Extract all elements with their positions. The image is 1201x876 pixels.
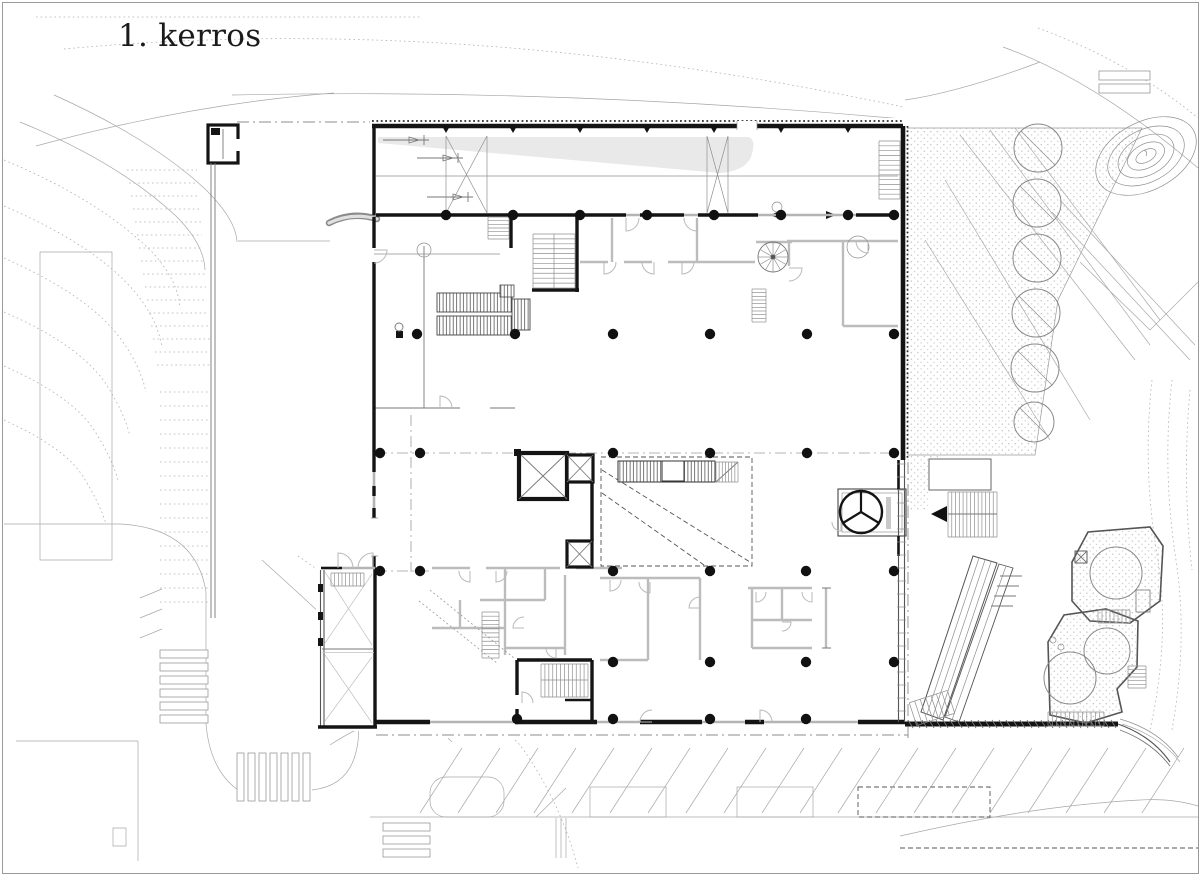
column-dot [510, 329, 520, 339]
column-dot [508, 210, 518, 220]
revolving-door-entrance [838, 489, 906, 536]
column-dot [705, 657, 715, 667]
column-dot [375, 448, 385, 458]
column-dot [512, 714, 522, 724]
column-dot [801, 566, 811, 576]
column-dot [608, 657, 618, 667]
west-retaining-wall [211, 163, 215, 618]
column-dot [705, 714, 715, 724]
site-plan-drawing [0, 0, 1201, 876]
spiral-staircase-icon [758, 242, 788, 272]
column-dot [441, 210, 451, 220]
column-dot [608, 566, 618, 576]
column-dot [608, 329, 618, 339]
planter-upper [1072, 527, 1163, 623]
column-dot [889, 657, 899, 667]
site-stair-kiosk [208, 125, 240, 163]
building-footprint-mask [205, 118, 1003, 738]
column-dot [705, 329, 715, 339]
column-dot [608, 714, 618, 724]
column-dot [642, 210, 652, 220]
column-dot [415, 566, 425, 576]
planter-lower [1044, 609, 1138, 723]
entrance-canopy [329, 216, 377, 223]
column-dot [801, 657, 811, 667]
column-dot [889, 210, 899, 220]
column-dot [575, 210, 585, 220]
column-dot [802, 448, 812, 458]
column-dot [889, 448, 899, 458]
embankment-hatch [127, 170, 212, 602]
column-dot [705, 566, 715, 576]
column-dot [843, 210, 853, 220]
column-dot [802, 329, 812, 339]
column-dot [801, 714, 811, 724]
floor-label: 1. kerros [118, 18, 261, 54]
column-dot [705, 448, 715, 458]
column-dot [889, 329, 899, 339]
column-dot [412, 329, 422, 339]
column-dot [889, 566, 899, 576]
column-dot [608, 448, 618, 458]
column-dot [375, 566, 385, 576]
column-dot [415, 448, 425, 458]
column-dot [709, 210, 719, 220]
floor-plan-sheet: 1. kerros [0, 0, 1201, 876]
stippled-ground [905, 128, 1142, 510]
column-dot [776, 210, 786, 220]
